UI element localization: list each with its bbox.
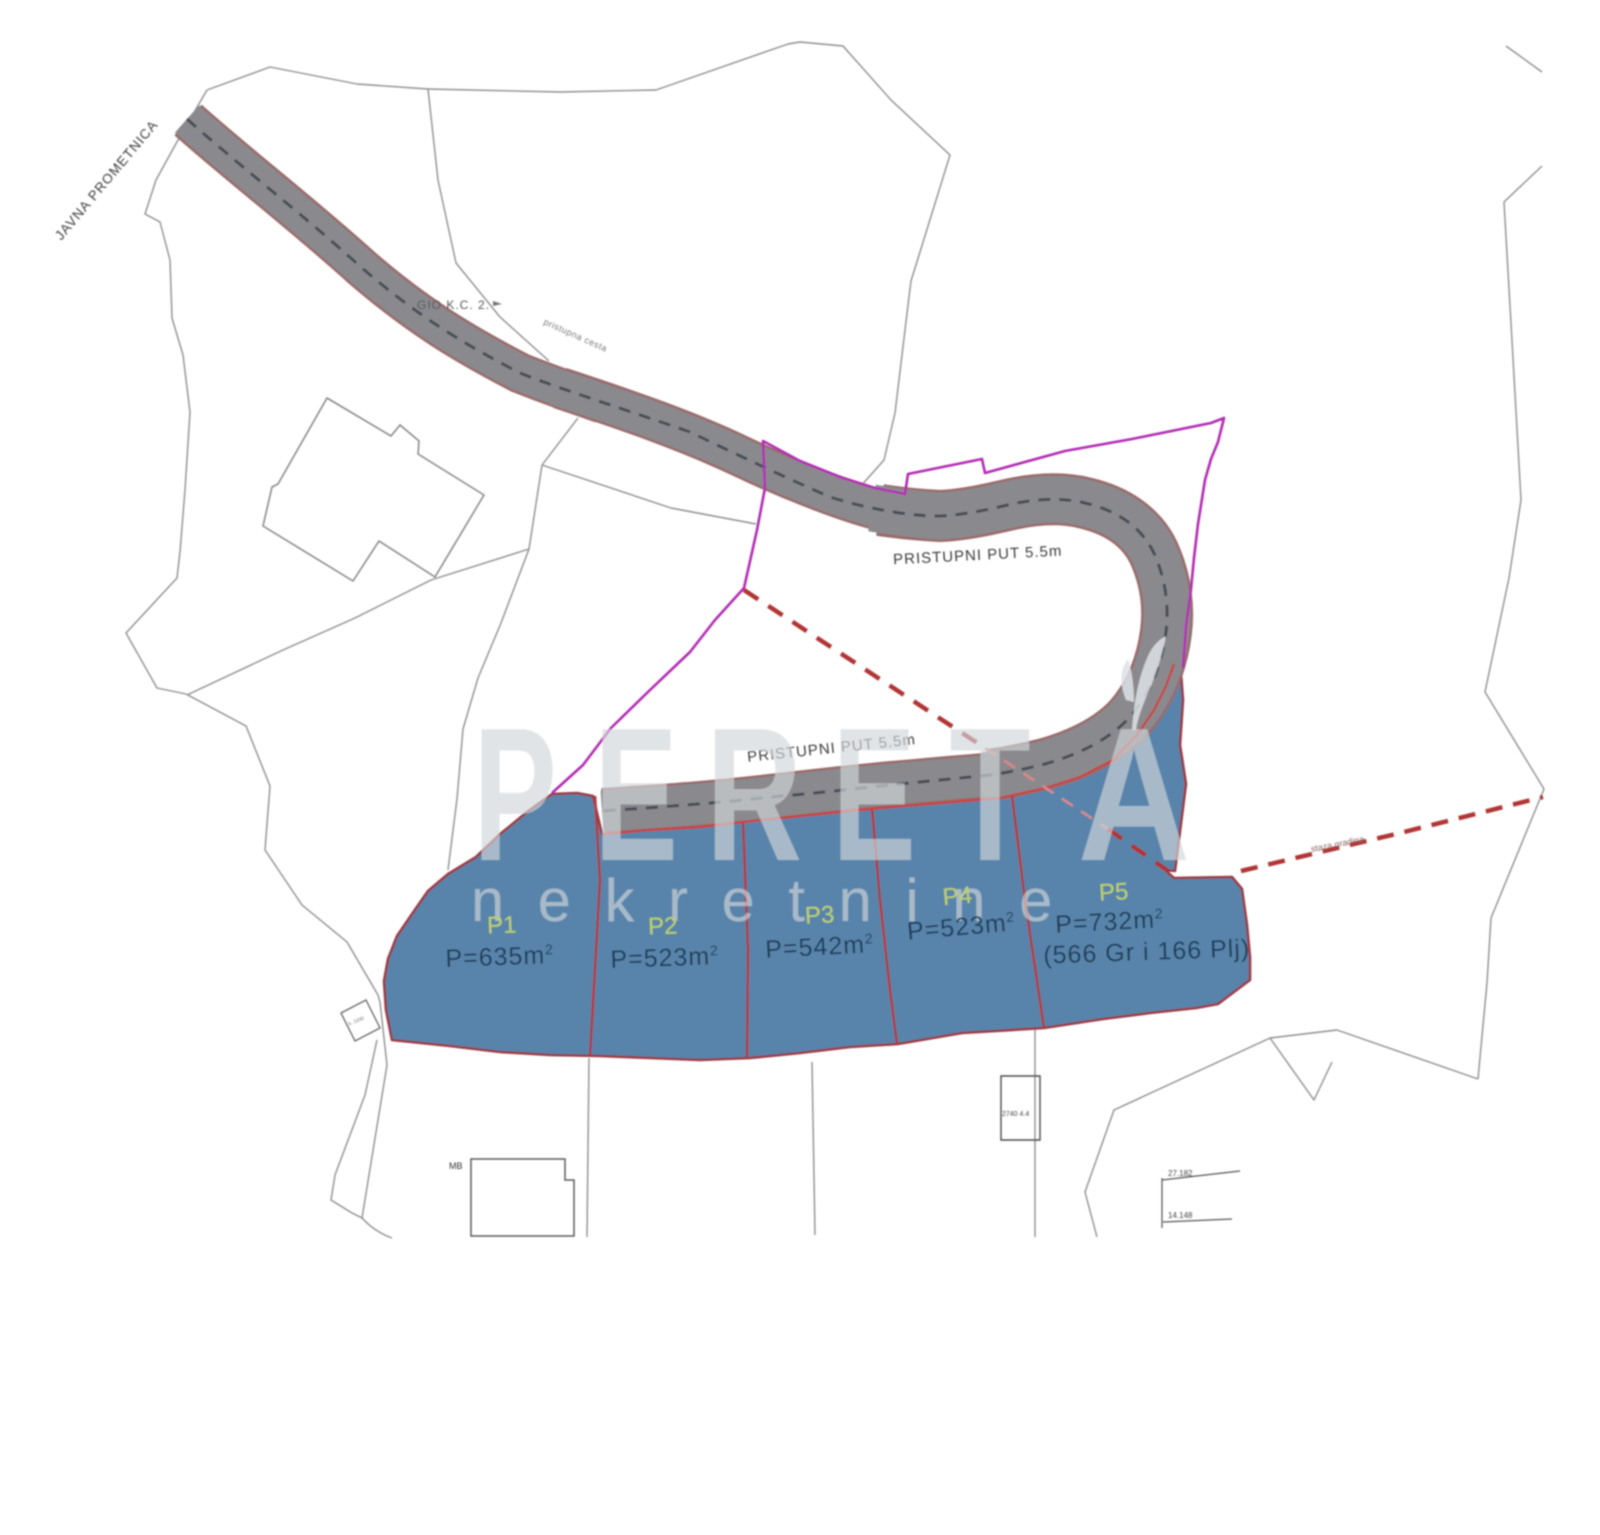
svg-text:27.182: 27.182: [1168, 1169, 1193, 1178]
svg-text:2740 4.4: 2740 4.4: [1002, 1111, 1029, 1118]
svg-text:P=523m2: P=523m2: [610, 942, 720, 974]
svg-text:P2: P2: [648, 913, 678, 941]
svg-text:P=542m2: P=542m2: [765, 930, 875, 964]
svg-text:P1: P1: [487, 912, 517, 940]
svg-text:P=732m2: P=732m2: [1055, 905, 1165, 939]
svg-text:14.148: 14.148: [1168, 1211, 1193, 1220]
svg-text:P3: P3: [804, 901, 835, 929]
svg-text:P=635m2: P=635m2: [445, 941, 555, 973]
svg-text:GIO K.C. 2.: GIO K.C. 2.: [417, 298, 490, 312]
svg-text:P4: P4: [942, 882, 974, 911]
svg-text:MB: MB: [449, 1161, 463, 1171]
svg-text:P5: P5: [1098, 878, 1129, 906]
